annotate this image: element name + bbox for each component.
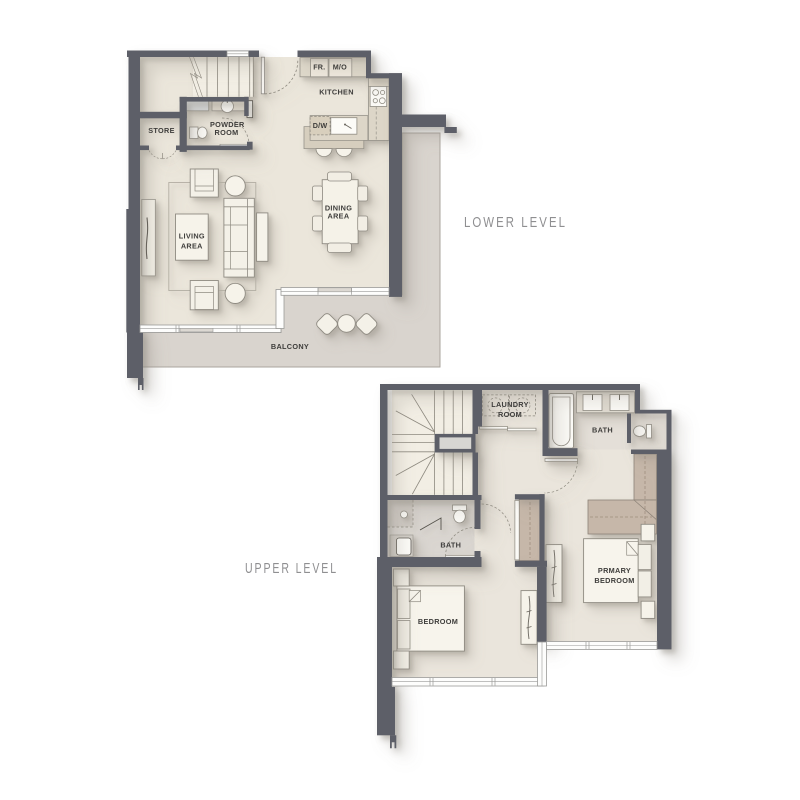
svg-text:BALCONY: BALCONY: [271, 342, 309, 351]
svg-text:LOWER LEVEL: LOWER LEVEL: [464, 215, 567, 231]
svg-text:BATH: BATH: [592, 425, 613, 434]
svg-text:AREA: AREA: [181, 241, 203, 250]
svg-text:BEDROOM: BEDROOM: [594, 576, 634, 585]
svg-text:LIVING: LIVING: [179, 231, 205, 240]
svg-text:M/O: M/O: [333, 63, 347, 72]
svg-text:D/W: D/W: [313, 121, 328, 130]
svg-text:LAUNDRY: LAUNDRY: [491, 400, 529, 409]
svg-text:STORE: STORE: [148, 126, 175, 135]
svg-text:PRMARY: PRMARY: [598, 566, 631, 575]
svg-text:AREA: AREA: [328, 212, 350, 221]
svg-text:KITCHEN: KITCHEN: [319, 87, 354, 96]
svg-text:ROOM: ROOM: [498, 410, 522, 419]
svg-text:FR.: FR.: [313, 63, 325, 72]
svg-text:BATH: BATH: [440, 541, 461, 550]
svg-text:UPPER LEVEL: UPPER LEVEL: [245, 561, 338, 577]
svg-text:ROOM: ROOM: [215, 128, 239, 137]
svg-text:BEDROOM: BEDROOM: [418, 617, 458, 626]
